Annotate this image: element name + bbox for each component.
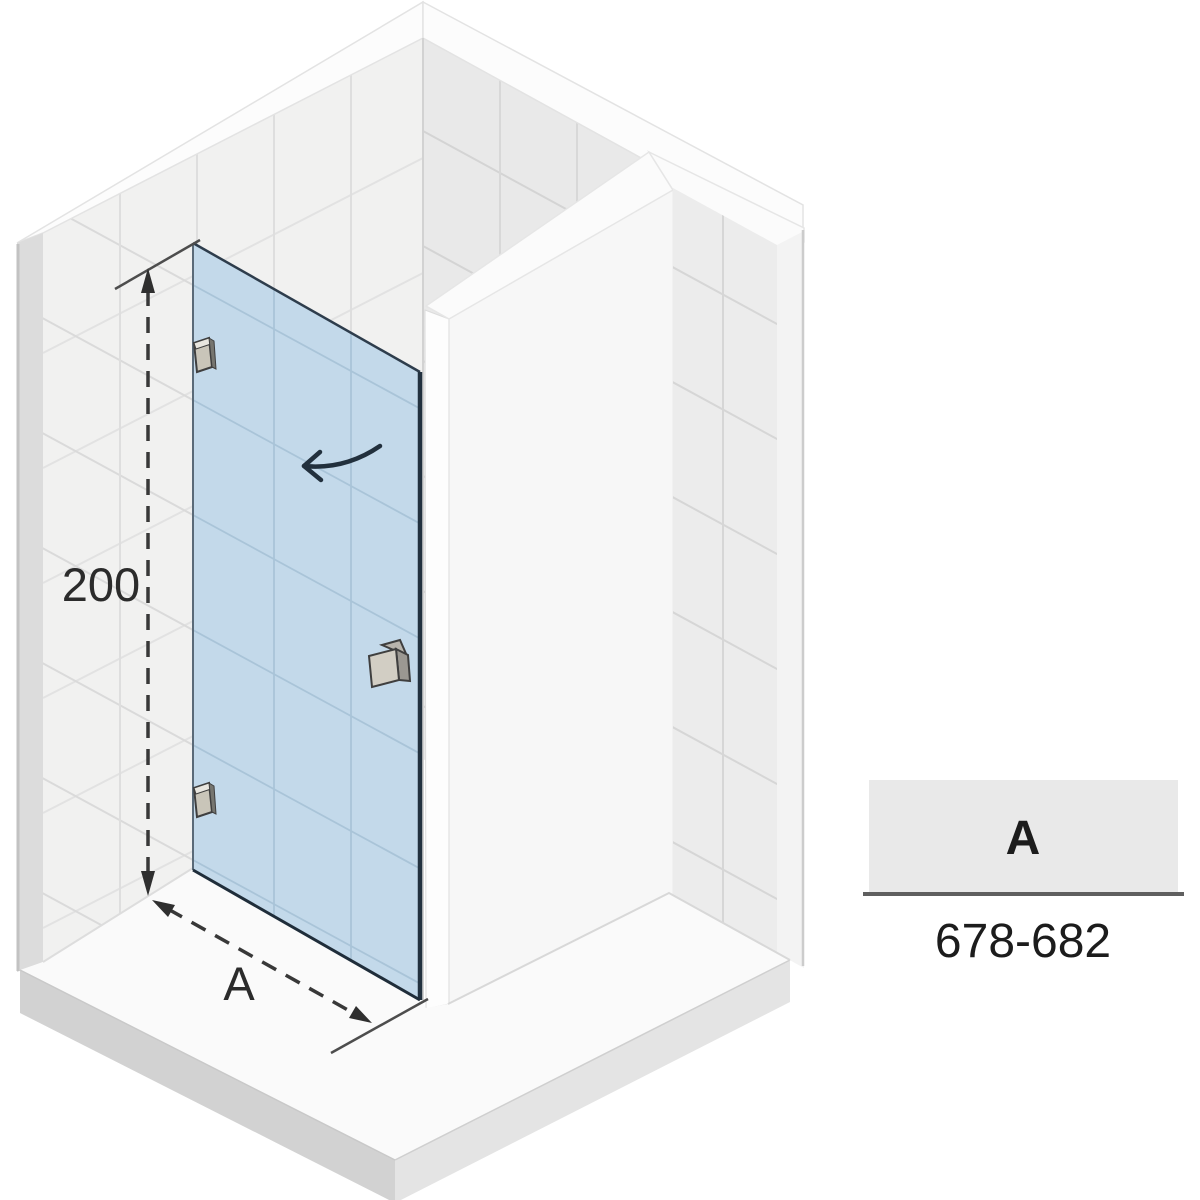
hinge-bottom-icon xyxy=(194,783,216,817)
glass-panel xyxy=(193,243,420,1000)
right-wall-tiled-sliver xyxy=(673,188,777,953)
size-table-header-label: A xyxy=(1006,812,1041,865)
right-wall-end-face xyxy=(777,231,804,968)
front-right-wall-end-strip xyxy=(425,310,449,1009)
width-dimension-label: A xyxy=(223,957,255,1010)
front-right-wall-face xyxy=(448,188,673,1005)
diagram-page: 200 A A 678-682 xyxy=(0,0,1200,1200)
size-table-value: 678-682 xyxy=(935,915,1111,968)
left-wall-end-face xyxy=(17,233,43,972)
size-table: A 678-682 xyxy=(863,780,1184,968)
shower-niche-diagram: 200 A A 678-682 xyxy=(0,0,1200,1200)
height-dimension-label: 200 xyxy=(62,558,140,611)
hinge-top-icon xyxy=(194,338,216,372)
